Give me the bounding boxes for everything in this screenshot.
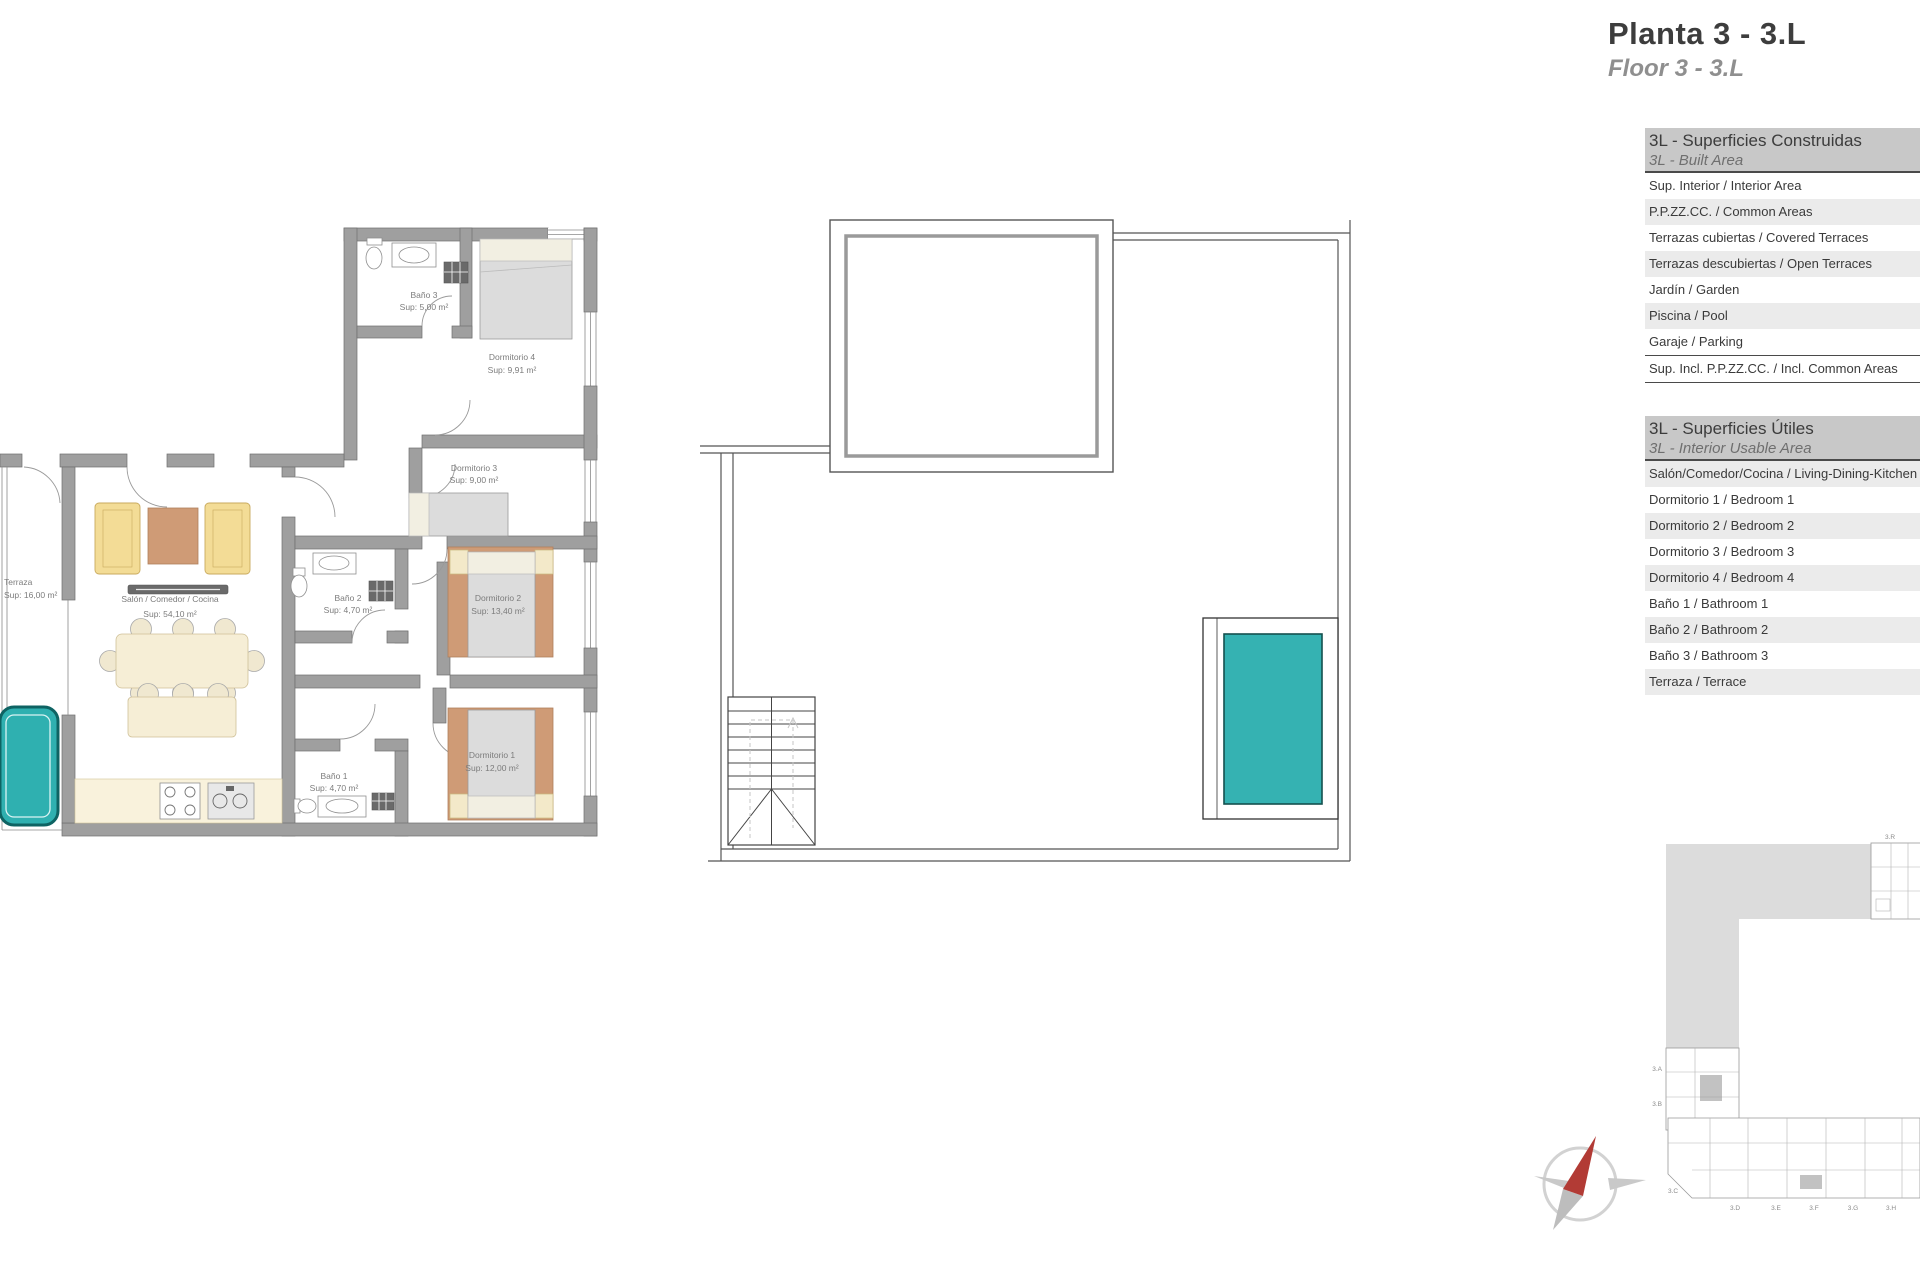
apartment-floorplan: Baño 3 Sup: 5,00 m² Dormitorio 4 Sup: 9,… bbox=[0, 210, 620, 860]
sofa bbox=[205, 503, 250, 574]
kitchen-counter bbox=[75, 779, 282, 823]
site-plan: 3.R 3.A 3.B 3.C 3.D 3.E 3.F 3.G 3.H bbox=[1640, 825, 1920, 1245]
title-block: Planta 3 - 3.L Floor 3 - 3.L bbox=[1608, 16, 1908, 83]
usable-area-table: 3L - Superficies Útiles 3L - Interior Us… bbox=[1645, 416, 1920, 695]
room-label-dorm3: Dormitorio 3 bbox=[451, 463, 498, 473]
toilet bbox=[366, 247, 382, 269]
usable-area-title-es: 3L - Superficies Útiles bbox=[1649, 419, 1920, 439]
table-total-row: Sup. Incl. P.P.ZZ.CC. / Incl. Common Are… bbox=[1645, 355, 1920, 383]
bedroom-4-bed bbox=[480, 239, 572, 339]
bathroom-3-fixtures bbox=[366, 238, 468, 283]
dining-table bbox=[116, 634, 248, 688]
table-row: Piscina / Pool bbox=[1645, 303, 1920, 329]
roof-terrace-floorplan bbox=[700, 200, 1400, 880]
toilet bbox=[291, 575, 307, 597]
unit-label: 3.B bbox=[1652, 1101, 1662, 1108]
room-area-dorm4: Sup: 9,91 m² bbox=[488, 365, 537, 375]
breakfast-bench bbox=[128, 684, 236, 738]
built-area-title-es: 3L - Superficies Construidas bbox=[1649, 131, 1920, 151]
room-area-banio2: Sup: 4,70 m² bbox=[324, 605, 373, 615]
table-row: Jardín / Garden bbox=[1645, 277, 1920, 303]
table-row: Dormitorio 3 / Bedroom 3 bbox=[1645, 539, 1920, 565]
unit-label: 3.F bbox=[1809, 1205, 1818, 1212]
table-row: Sup. Interior / Interior Area bbox=[1645, 173, 1920, 199]
coffee-table-rug bbox=[148, 508, 198, 564]
unit-label: 3.E bbox=[1771, 1205, 1781, 1212]
unit-label: 3.C bbox=[1668, 1188, 1678, 1195]
room-label-terraza: Terraza bbox=[4, 577, 33, 587]
room-label-dorm2: Dormitorio 2 bbox=[475, 593, 522, 603]
table-row: Baño 1 / Bathroom 1 bbox=[1645, 591, 1920, 617]
room-area-dorm2: Sup: 13,40 m² bbox=[471, 606, 525, 616]
table-row: Baño 3 / Bathroom 3 bbox=[1645, 643, 1920, 669]
built-area-table: 3L - Superficies Construidas 3L - Built … bbox=[1645, 128, 1920, 383]
sofa bbox=[95, 503, 140, 574]
table-row: Dormitorio 1 / Bedroom 1 bbox=[1645, 487, 1920, 513]
roof-pool bbox=[1203, 618, 1338, 819]
table-row: Baño 2 / Bathroom 2 bbox=[1645, 617, 1920, 643]
washer bbox=[372, 793, 394, 810]
staircase bbox=[728, 697, 815, 845]
compass-needle-north bbox=[1563, 1136, 1596, 1196]
usable-area-title-en: 3L - Interior Usable Area bbox=[1649, 440, 1920, 457]
table-row: Dormitorio 2 / Bedroom 2 bbox=[1645, 513, 1920, 539]
room-area-banio1: Sup: 4,70 m² bbox=[310, 783, 359, 793]
washer bbox=[444, 262, 468, 283]
built-area-table-header: 3L - Superficies Construidas 3L - Built … bbox=[1645, 128, 1920, 173]
table-row: Garaje / Parking bbox=[1645, 329, 1920, 355]
page-subtitle: Floor 3 - 3.L bbox=[1608, 55, 1908, 83]
compass-icon bbox=[1520, 1120, 1660, 1280]
room-area-banio3: Sup: 5,00 m² bbox=[400, 302, 449, 312]
bedroom-3-bed bbox=[409, 493, 508, 536]
built-area-title-en: 3L - Built Area bbox=[1649, 152, 1920, 169]
compass-needle-tail bbox=[1553, 1189, 1583, 1230]
bathroom-1-fixtures bbox=[294, 793, 394, 817]
compass-east-wing bbox=[1608, 1178, 1646, 1190]
table-row: Dormitorio 4 / Bedroom 4 bbox=[1645, 565, 1920, 591]
site-detail-top-right bbox=[1871, 843, 1920, 919]
table-row: Salón/Comedor/Cocina / Living-Dining-Kit… bbox=[1645, 461, 1920, 487]
page-title: Planta 3 - 3.L bbox=[1608, 16, 1908, 52]
unit-label: 3.H bbox=[1886, 1205, 1896, 1212]
terrace-pool bbox=[0, 707, 58, 825]
room-label-banio2: Baño 2 bbox=[335, 593, 362, 603]
living-room-furniture bbox=[75, 503, 282, 823]
room-area-salon: Sup: 54,10 m² bbox=[143, 609, 197, 619]
room-area-terraza: Sup: 16,00 m² bbox=[4, 590, 58, 600]
floorplan-sheet: { "page": { "title_es": "Planta 3 - 3.L"… bbox=[0, 0, 1920, 1280]
room-label-banio1: Baño 1 bbox=[321, 771, 348, 781]
room-area-dorm1: Sup: 12,00 m² bbox=[465, 763, 519, 773]
room-label-banio3: Baño 3 bbox=[411, 290, 438, 300]
unit-label: 3.R bbox=[1885, 834, 1895, 841]
unit-label: 3.A bbox=[1652, 1066, 1662, 1073]
table-row: Terrazas cubiertas / Covered Terraces bbox=[1645, 225, 1920, 251]
unit-label: 3.G bbox=[1848, 1205, 1858, 1212]
room-label-dorm4: Dormitorio 4 bbox=[489, 352, 536, 362]
building-footprint bbox=[1666, 844, 1871, 1048]
room-label-salon: Salón / Comedor / Cocina bbox=[121, 594, 219, 604]
room-label-dorm1: Dormitorio 1 bbox=[469, 750, 516, 760]
site-detail-bottom-strip bbox=[1668, 1118, 1920, 1198]
table-row: Terraza / Terrace bbox=[1645, 669, 1920, 695]
unit-label: 3.D bbox=[1730, 1205, 1740, 1212]
table-row: P.P.ZZ.CC. / Common Areas bbox=[1645, 199, 1920, 225]
toilet bbox=[298, 799, 316, 813]
usable-area-table-header: 3L - Superficies Útiles 3L - Interior Us… bbox=[1645, 416, 1920, 461]
room-area-dorm3: Sup: 9,00 m² bbox=[450, 475, 499, 485]
table-row: Terrazas descubiertas / Open Terraces bbox=[1645, 251, 1920, 277]
